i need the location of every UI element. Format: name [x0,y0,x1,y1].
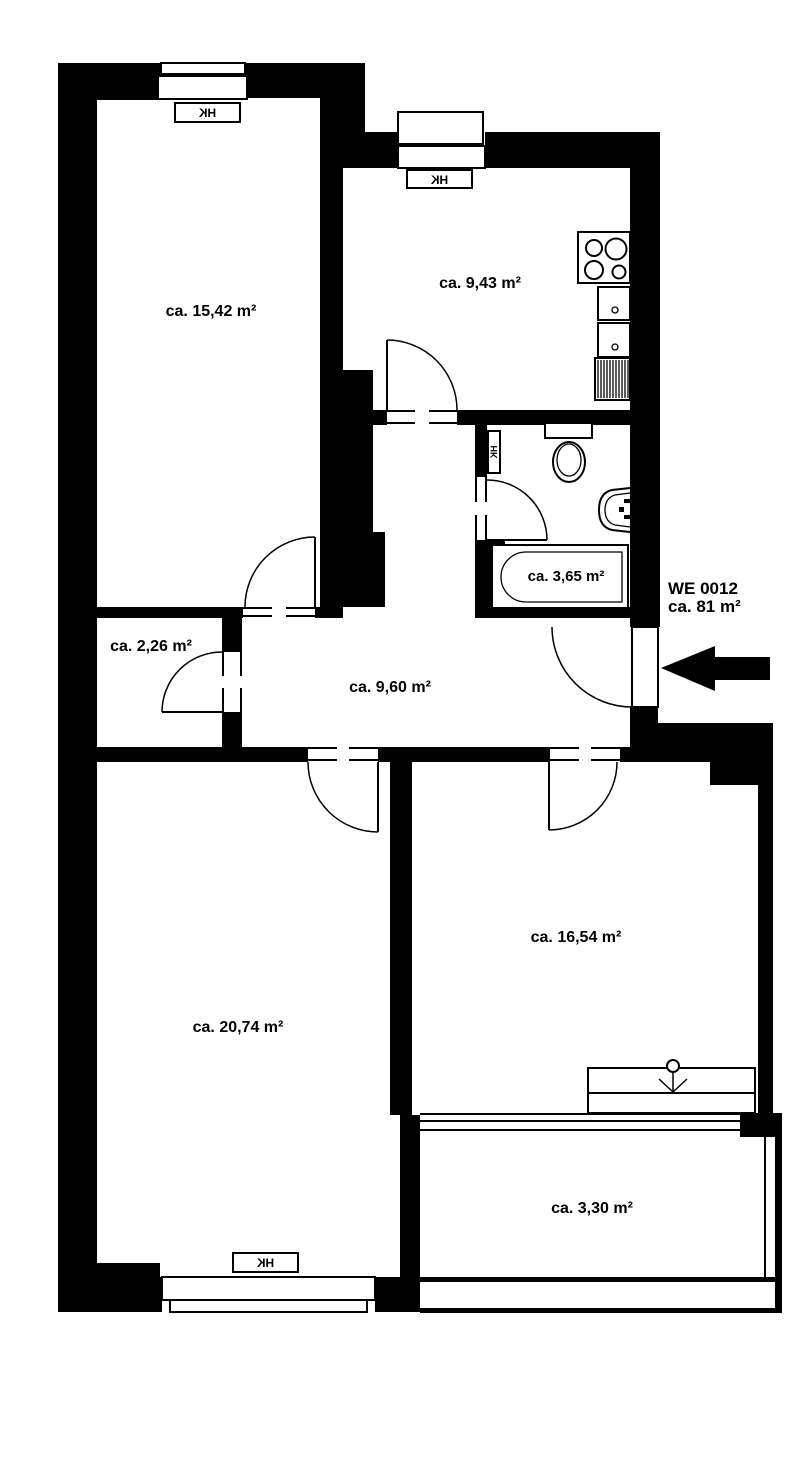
wall [343,370,373,607]
wall [390,762,412,1115]
wall [630,132,660,627]
kitchen-cabinet-icon [598,287,630,320]
window [161,63,245,74]
radiator-label: HK [199,106,217,120]
unit-label: WE 0012 ca. 81 m² [668,579,741,616]
wall [97,63,161,100]
balcony-railing [775,1137,782,1313]
wall [710,762,773,785]
room-label-storage: ca. 2,26 m² [110,638,192,655]
balcony-elements [420,1060,782,1313]
balcony-railing [764,1137,766,1282]
balcony-slab-edge [420,1277,777,1282]
door-opening [222,652,242,712]
door-swing-arc [308,762,378,832]
wall [222,712,242,747]
balcony-glazing [420,1114,740,1130]
window [170,1300,367,1312]
window [398,146,485,168]
wall [620,747,773,762]
wall [315,607,343,618]
wall [758,785,773,1117]
unit-id: WE 0012 [668,579,738,598]
balcony-slab-edge [420,1308,782,1313]
room-label-top-left: ca. 15,42 m² [166,303,257,320]
room-label-bottom-left: ca. 20,74 m² [193,1019,284,1036]
radiator-label: HK [489,446,499,459]
entrance-door-swing-arc [552,627,632,707]
washbasin-fitting [624,499,631,503]
floor-plan-drawing: HK HK HK HK ca. 15,42 m² ca. 9,43 m² ca.… [0,0,797,1471]
balcony-door-handle-icon [667,1060,679,1072]
washbasin-fitting [624,515,631,519]
radiator-label: HK [431,173,449,187]
entrance-arrow-icon [661,646,770,691]
wall [343,410,387,425]
wall [658,723,773,747]
room-label-balcony: ca. 3,30 m² [551,1200,633,1217]
entrance-door-panel [632,627,658,707]
unit-area: ca. 81 m² [668,597,741,616]
window [162,1277,375,1300]
wall [222,618,242,652]
kitchen-cabinet-icon [598,323,630,357]
wall [97,607,243,618]
wall [373,532,385,607]
wall [630,707,658,747]
wall [97,747,308,762]
door-swing-arc [162,652,222,712]
wall [320,98,343,607]
room-label-bottom-right: ca. 16,54 m² [531,929,622,946]
door-swing-arc [549,762,617,830]
wall [245,63,365,98]
wall [475,425,487,477]
door-swing-arc [487,480,547,540]
door-swing-arc [245,537,315,607]
wall [58,63,97,1312]
wall [378,747,550,762]
toilet-cistern-icon [545,423,592,438]
washbasin-tap-icon [619,507,624,512]
door-swing-arc [387,340,457,410]
room-label-kitchen: ca. 9,43 m² [439,275,521,292]
wall [485,132,630,168]
wall [457,410,630,425]
window [398,112,483,144]
floor-plan: HK HK HK HK ca. 15,42 m² ca. 9,43 m² ca.… [0,0,797,1471]
kitchen-fixtures [578,232,630,400]
room-label-hallway: ca. 9,60 m² [349,679,431,696]
wall [375,1277,420,1312]
room-label-bathroom: ca. 3,65 m² [528,568,605,585]
window [158,76,247,99]
wall [92,1263,160,1312]
wall [740,1113,782,1137]
radiator-label: HK [257,1256,275,1270]
